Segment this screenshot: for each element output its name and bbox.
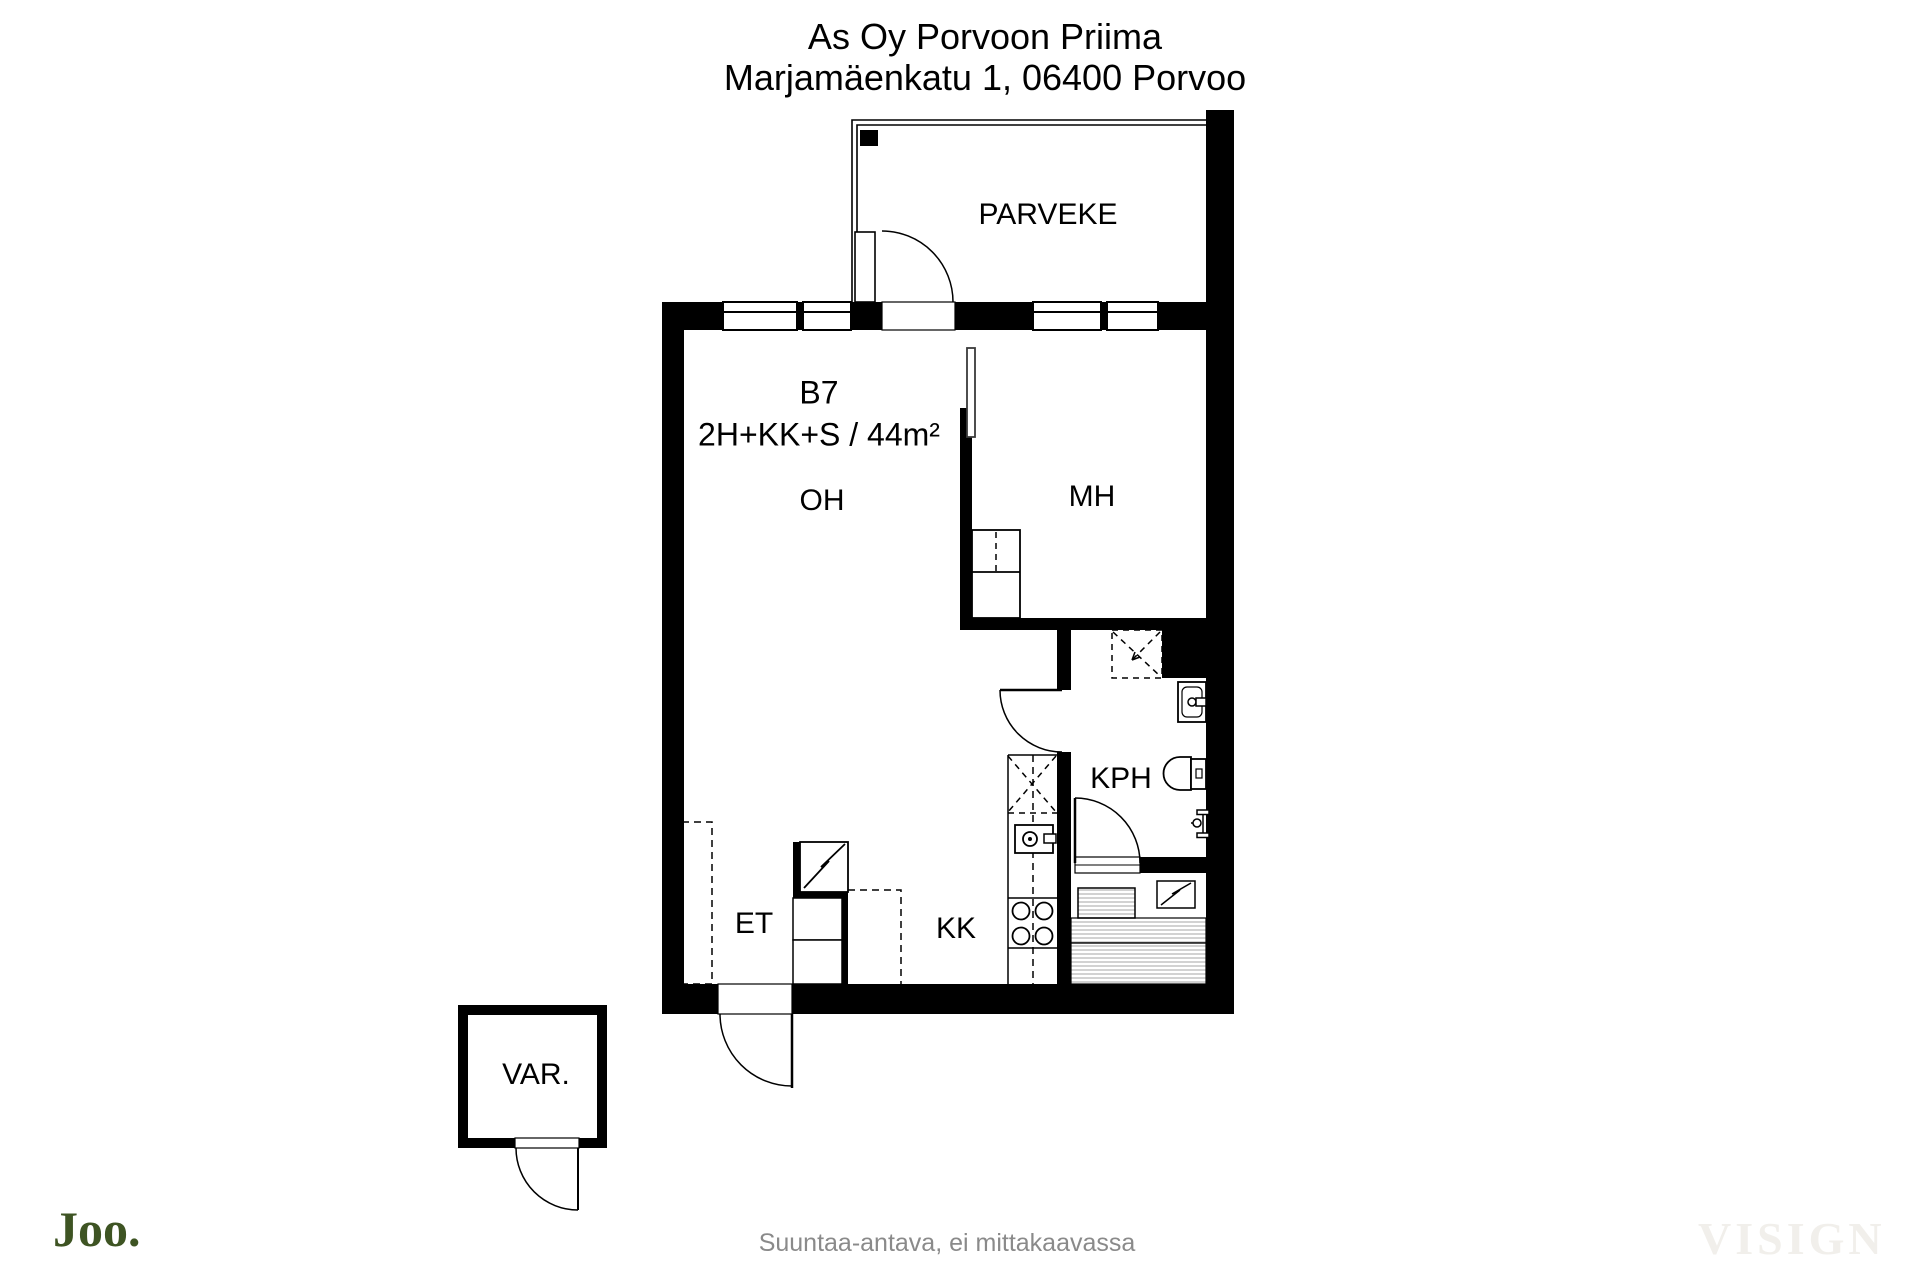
apartment-unit: B7 <box>799 375 838 412</box>
wall-top-seg1 <box>662 302 723 330</box>
cabinet <box>793 898 842 940</box>
appliance-reservation <box>848 890 901 984</box>
toilet-icon <box>1164 757 1207 790</box>
room-label-bedroom: MH <box>1069 480 1116 514</box>
wall-mh-south <box>960 618 1206 630</box>
counter <box>1071 943 1206 984</box>
wall-right <box>1206 110 1234 1014</box>
exterior-walls <box>662 110 1234 1014</box>
window <box>803 302 851 330</box>
room-label-kitchenette: KK <box>936 912 976 946</box>
window <box>723 302 797 330</box>
room-label-living: OH <box>800 484 845 518</box>
counter <box>1071 918 1206 943</box>
building-name: As Oy Porvoon Priima <box>724 16 1246 57</box>
room-label-storage: VAR. <box>502 1058 570 1092</box>
wall-kph-south <box>1140 857 1206 873</box>
wall-kph-west-upper <box>1057 630 1071 690</box>
wall-kph-ne-block <box>1162 630 1206 678</box>
wall-kph-west-lower <box>1057 752 1071 984</box>
entry-fixtures <box>682 822 901 984</box>
balcony-pillar <box>860 130 878 146</box>
building-address: Marjamäenkatu 1, 06400 Porvoo <box>724 57 1246 98</box>
wall-top-seg3 <box>955 302 1033 330</box>
front-door <box>718 984 792 1088</box>
interior-walls <box>793 408 1206 984</box>
room-label-balcony: PARVEKE <box>979 198 1118 232</box>
wall-mh-west <box>960 408 972 618</box>
laundry-fixtures <box>1071 881 1206 984</box>
kph-west-door-swing <box>1000 690 1062 752</box>
company-logo: Joo. <box>53 1200 141 1258</box>
balcony-door-leaf <box>855 232 875 302</box>
wall-bottom-seg2 <box>792 984 1234 1014</box>
plan-title: As Oy Porvoon Priima Marjamäenkatu 1, 06… <box>724 16 1246 98</box>
storage-door-swing <box>516 1148 578 1210</box>
wall-left <box>662 302 684 1014</box>
mh-closet <box>972 530 1020 618</box>
cabinet <box>793 940 842 984</box>
kph-west-door <box>1000 690 1062 752</box>
kph-south-door-swing <box>1075 798 1140 863</box>
washbasin-icon <box>1178 682 1206 722</box>
balcony-door-swing <box>882 231 953 302</box>
floor-plan <box>0 0 1920 1280</box>
wall-top-seg2 <box>851 302 882 330</box>
wardrobe-reservation <box>682 822 712 984</box>
wall-bottom-seg1 <box>662 984 718 1014</box>
dryer-icon <box>1157 881 1195 908</box>
apartment-spec: 2H+KK+S / 44m² <box>698 417 940 454</box>
window <box>1033 302 1101 330</box>
shower-reservation-icon <box>1112 630 1162 678</box>
visign-watermark: VISIGN <box>1698 1212 1886 1265</box>
kitchen-fixtures <box>1008 755 1057 984</box>
electrical-cabinet-icon <box>800 842 848 892</box>
wall-et-right <box>842 898 848 984</box>
room-label-entrance: ET <box>735 907 773 941</box>
wall-et-stub <box>793 842 800 892</box>
room-label-bathroom: KPH <box>1090 762 1152 796</box>
washer-icon <box>1078 888 1135 918</box>
window <box>1107 302 1158 330</box>
scale-disclaimer: Suuntaa-antava, ei mittakaavassa <box>759 1229 1136 1258</box>
storage-room <box>458 1005 607 1210</box>
front-door-swing <box>720 1014 792 1086</box>
sink-icon <box>1015 825 1056 853</box>
kph-south-door <box>1075 798 1140 873</box>
wall-et-mid <box>793 892 848 898</box>
mh-sliding-door-leaf <box>967 348 975 437</box>
